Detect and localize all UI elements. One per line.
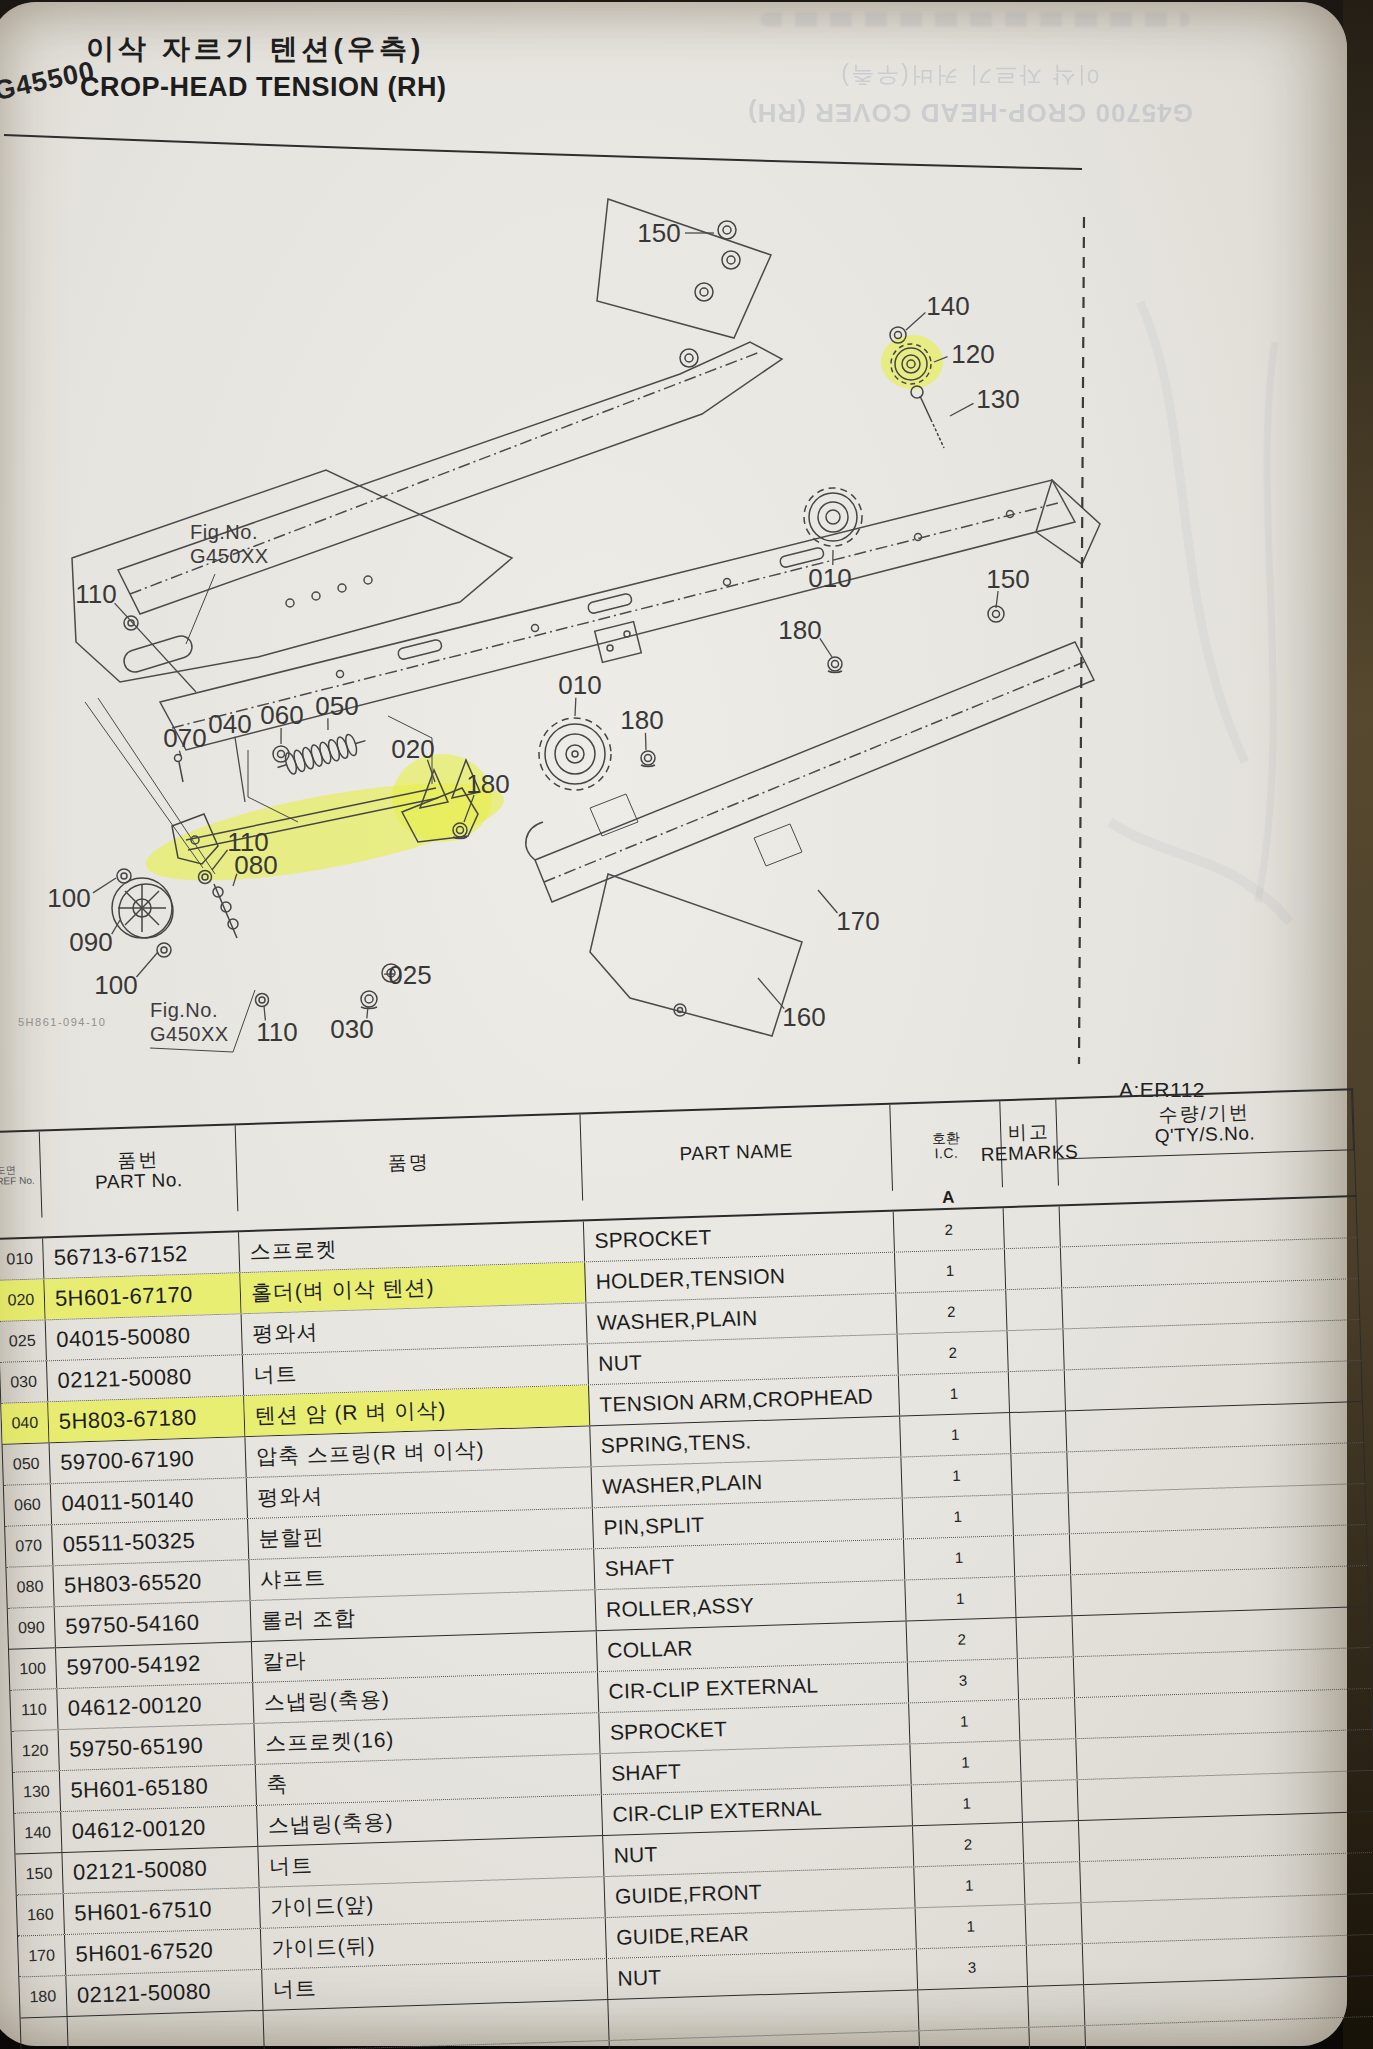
ic-cell (1007, 1329, 1064, 1371)
fig-no-code: G450XX (150, 1022, 229, 1046)
leader-line (950, 403, 973, 416)
callout-label-060: 060 (260, 700, 303, 730)
qty-cell: 2 (898, 1331, 1009, 1374)
ref-cell: 030 (0, 1361, 48, 1402)
qty-cell: 1 (910, 1741, 1021, 1784)
callout-label-140: 140 (926, 291, 969, 321)
callout-labels: 1501401201301800101500101801100700400600… (47, 218, 1029, 1047)
ic-cell (1015, 1575, 1072, 1617)
leader-line (93, 878, 116, 893)
callout-label-100: 100 (94, 970, 137, 1000)
title-divider-line (4, 135, 1082, 169)
ref-cell: 180 (19, 1976, 67, 2017)
qty-cell: 1 (916, 1905, 1027, 1948)
pn-cell: 59700-67190 (50, 1437, 247, 1483)
ic-cell (1018, 1657, 1075, 1699)
header-part-name: PART NAME (580, 1105, 893, 1201)
ic-cell (1029, 2026, 1086, 2049)
qty-cell: 3 (917, 1946, 1028, 1989)
nut-030 (361, 991, 377, 1009)
ghost-diagram-marks (1110, 302, 1290, 922)
ic-cell (1014, 1534, 1071, 1576)
pn-cell: 02121-50080 (62, 1847, 259, 1893)
page-separator-dashed-line (1079, 217, 1084, 1064)
ic-cell (1010, 1411, 1067, 1453)
nut-180-group (453, 657, 842, 838)
header-remarks: 비고 REMARKS (1000, 1099, 1059, 1187)
qty-cell: 1 (899, 1372, 1010, 1415)
callout-label-180: 180 (778, 615, 821, 645)
leader-line (906, 312, 925, 330)
leader-line (575, 698, 576, 716)
callout-label-025: 025 (388, 960, 431, 990)
frame-structure (72, 199, 1100, 1036)
pn-cell: 5H803-67180 (48, 1396, 245, 1442)
ic-cell (1028, 1985, 1085, 2027)
pn-cell: 5H601-67520 (65, 1929, 262, 1975)
ic-cell (1004, 1206, 1061, 1248)
callout-label-040: 040 (208, 709, 251, 739)
ref-cell: 080 (6, 1566, 54, 1607)
callout-label-180: 180 (620, 705, 663, 735)
pn-cell (68, 2011, 265, 2049)
fig-no-label: Fig.No. (190, 520, 269, 544)
callout-label-030: 030 (330, 1014, 373, 1044)
callout-label-150: 150 (637, 218, 680, 248)
ref-cell (21, 2017, 69, 2049)
ref-cell: 150 (15, 1853, 63, 1894)
ref-cell: 140 (14, 1812, 62, 1853)
header-name-ko: 품명 (236, 1114, 584, 1211)
ref-cell: 100 (9, 1648, 57, 1689)
qty-cell: 3 (908, 1659, 1019, 1702)
sprocket-010-upper (804, 488, 862, 546)
split-pin-070 (175, 755, 184, 783)
ic-cell (1016, 1616, 1073, 1658)
ref-cell: 010 (0, 1238, 44, 1279)
ic-cell (1009, 1370, 1066, 1412)
ic-cell (1022, 1780, 1079, 1822)
callout-label-110: 110 (256, 1017, 297, 1047)
circlip-110-bottom (256, 994, 269, 1007)
qty-cell (918, 1987, 1029, 2030)
circlip-110-left (124, 616, 138, 630)
ic-cell (1011, 1452, 1068, 1494)
leader-line (758, 978, 784, 1009)
leader-line (115, 603, 196, 692)
callout-label-110: 110 (75, 579, 116, 609)
pn-cell: 05511-50325 (52, 1519, 249, 1565)
qty-cell: 1 (895, 1249, 1006, 1292)
header-ref: 도면 REF No. (0, 1131, 42, 1218)
qty-cell: 2 (907, 1618, 1018, 1661)
pn-cell: 02121-50080 (47, 1355, 244, 1401)
highlighter-marks (139, 335, 943, 901)
catalog-page: G45700 CROP-HEAD COVER (RH) 이삭 자르기 커버(우측… (0, 2, 1347, 2046)
qty-cell: 1 (909, 1700, 1020, 1743)
ref-cell: 060 (4, 1484, 52, 1525)
ic-cell (1005, 1247, 1062, 1289)
table-body: 01056713-67152스프로켓SPROCKET20205H601-6717… (0, 1195, 1373, 2049)
leader-line (645, 733, 646, 750)
ref-cell: 170 (18, 1935, 66, 1976)
pn-cell: 04015-50080 (46, 1314, 243, 1360)
bolt-130 (911, 386, 944, 448)
callout-label-080: 080 (234, 850, 277, 880)
pn-cell: 59750-65190 (59, 1724, 256, 1770)
ref-cell: 070 (5, 1525, 53, 1566)
callout-label-170: 170 (836, 906, 879, 936)
ref-cell: 025 (0, 1320, 47, 1361)
pn-cell: 5H601-65180 (60, 1765, 257, 1811)
qty-cell: 1 (901, 1454, 1012, 1497)
shaft-080 (213, 884, 238, 938)
document-code: 5H861-094-10 (18, 1016, 106, 1028)
ref-cell: 160 (17, 1894, 65, 1935)
ref-cell: 090 (8, 1607, 56, 1648)
ref-cell: 040 (1, 1402, 49, 1443)
leader-line (818, 890, 837, 913)
fig-no-label: Fig.No. (150, 998, 229, 1022)
qty-cell: 2 (896, 1290, 1007, 1333)
header-part-no: 품번 PART No. (40, 1125, 239, 1217)
ref-cell: 020 (0, 1279, 46, 1320)
pn-cell: 5H803-65520 (53, 1560, 250, 1606)
qty-cell: 1 (914, 1864, 1025, 1907)
header-qty: 수량/기번 Q'TY/S.No. (1056, 1090, 1354, 1159)
pn-cell: 04011-50140 (51, 1478, 248, 1524)
pn-cell: 5H601-67170 (44, 1273, 241, 1319)
qty-cell: 1 (904, 1536, 1015, 1579)
sprocket-010-center (539, 718, 611, 790)
qty-cell: 1 (903, 1495, 1014, 1538)
qty-cell (919, 2027, 1030, 2049)
callout-label-070: 070 (163, 723, 206, 753)
photo-of-parts-catalog-page: { "page": { "code": "G45500", "title_ko"… (0, 0, 1373, 2049)
qty-cell: 1 (905, 1577, 1016, 1620)
ref-cell: 050 (3, 1443, 51, 1484)
callout-label-010: 010 (558, 670, 601, 700)
callout-label-100: 100 (47, 883, 90, 913)
ic-cell (1023, 1821, 1080, 1863)
fig-note-bottom: Fig.No. G450XX (150, 998, 229, 1046)
header-qty-spec: A (893, 1187, 1004, 1209)
qty-cell: 1 (900, 1413, 1011, 1456)
fig-no-code: G450XX (190, 544, 269, 568)
ref-cell: 130 (13, 1771, 61, 1812)
callout-label-090: 090 (69, 927, 112, 957)
ref-cell: 120 (12, 1730, 60, 1771)
qty-cell: 1 (912, 1782, 1023, 1825)
collar-100-upper (117, 869, 131, 883)
pn-cell: 59750-54160 (55, 1601, 252, 1647)
qty-cell: 2 (913, 1823, 1024, 1866)
roller-090 (112, 878, 173, 938)
bushing-150-group (680, 221, 740, 367)
pn-cell: 56713-67152 (43, 1232, 240, 1278)
callout-label-150: 150 (986, 564, 1029, 594)
callout-label-050: 050 (315, 691, 358, 721)
pn-cell: 59700-54192 (56, 1642, 253, 1688)
fig-note-top: Fig.No. G450XX (190, 520, 269, 568)
pn-cell: 04612-00120 (57, 1683, 254, 1729)
leader-line (235, 737, 245, 802)
ic-cell (1019, 1698, 1076, 1740)
pn-cell: 02121-50080 (66, 1970, 263, 2016)
washer-150-right (988, 606, 1004, 622)
parts-table: 도면 REF No. 품번 PART No. 품명 PART NAME 수량/기… (0, 1088, 1373, 2049)
ic-cell (1006, 1288, 1063, 1330)
ic-cell (1026, 1903, 1083, 1945)
callout-label-180: 180 (466, 769, 509, 799)
callout-label-160: 160 (782, 1002, 825, 1032)
ic-cell (1024, 1862, 1081, 1904)
callout-label-010: 010 (808, 563, 851, 593)
ref-cell: 110 (10, 1689, 58, 1730)
ic-cell (1020, 1739, 1077, 1781)
ic-cell (1013, 1493, 1070, 1535)
callout-label-120: 120 (951, 339, 994, 369)
leader-line (136, 952, 158, 977)
pn-cell: 5H601-67510 (64, 1888, 261, 1934)
callout-label-130: 130 (976, 384, 1019, 414)
ic-cell (1027, 1944, 1084, 1986)
qty-cell: 2 (894, 1208, 1005, 1251)
fig-note-top-leader (186, 574, 215, 644)
callout-label-020: 020 (391, 734, 434, 764)
collar-100-lower (157, 943, 171, 957)
pn-cell: 04612-00120 (61, 1806, 258, 1852)
